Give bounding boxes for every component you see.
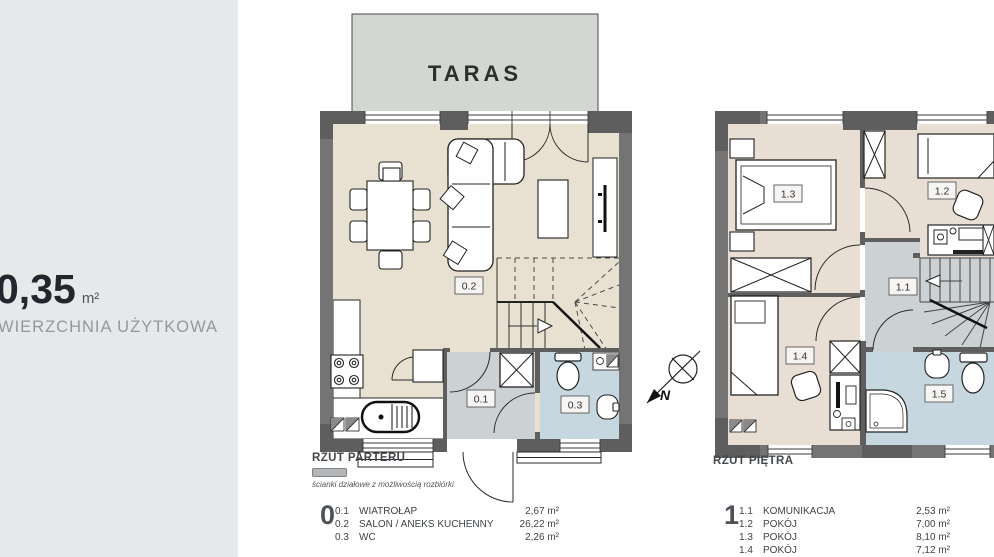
room-code: 0.3 [335,531,359,544]
room-label-12: 1.2 [935,186,950,198]
room-name: SALON / ANEKS KUCHENNY [359,518,503,531]
north-label: N [660,387,671,403]
table-row: 0.2 SALON / ANEKS KUCHENNY 26,22 m² [335,518,559,531]
ground-level-number: 0 [320,504,335,527]
legend-upper: RZUT PIĘTRA [713,455,793,467]
room-label-02: 0.2 [462,281,477,293]
wc-sink [597,395,619,419]
table-row: 1.2 POKÓJ 7,00 m² [739,518,950,531]
room-label-14: 1.4 [793,351,808,363]
floorplan-page: { "left_panel": { "area_value": "0,35", … [0,0,994,557]
terrace-label: TARAS [428,61,522,86]
room-name: WC [359,531,503,544]
bed-single-14 [731,296,778,395]
fridge [413,350,443,382]
wardrobe-14 [830,341,860,373]
room-area: 8,10 m² [894,531,950,544]
legend-ground: RZUT PARTERU ścianki działowe z możliwoś… [312,452,454,489]
room-code: 0.1 [335,505,359,518]
room-label-13: 1.3 [781,189,796,201]
room-name: POKÓJ [763,531,894,544]
room-name: POKÓJ [763,544,894,557]
room-label-01: 0.1 [474,394,489,406]
upper-level-number: 1 [724,504,739,527]
desk-14 [830,375,860,430]
table-row: 1.1 KOMUNIKACJA 2,53 m² [739,505,950,518]
wardrobe-hall [500,353,533,387]
room-11-floor [865,242,920,352]
upper-floor-plan: 1.3 1.2 1.1 1.4 1.5 [715,111,994,458]
upper-plan-title: RZUT PIĘTRA [713,455,793,467]
north-arrow: N [647,351,700,403]
upper-room-list: 1 1.1 KOMUNIKACJA 2,53 m² 1.2 POKÓJ 7,00… [724,504,950,557]
coffee-table [538,180,568,238]
floorplan-drawing: TARAS [0,0,994,557]
room-code: 1.4 [739,544,763,557]
wc-shaft [593,353,619,370]
room-name: WIATROŁAP [359,505,503,518]
room-code: 1.2 [739,518,763,531]
room-code: 1.3 [739,531,763,544]
room-area: 2,67 m² [503,505,559,518]
room-label-15: 1.5 [932,389,947,401]
toilet-wc [555,353,581,390]
room-area: 2,53 m² [894,505,950,518]
room-area: 26,22 m² [503,518,559,531]
table-row: 0.1 WIATROŁAP 2,67 m² [335,505,559,518]
room-label-03: 0.3 [568,400,583,412]
shaft-wardrobe [864,131,885,178]
room-label-11: 1.1 [896,282,911,294]
room-name: KOMUNIKACJA [763,505,894,518]
room-code: 0.2 [335,518,359,531]
tv-unit [593,158,617,257]
room-name: POKÓJ [763,518,894,531]
table-row: 1.3 POKÓJ 8,10 m² [739,531,950,544]
room-code: 1.1 [739,505,763,518]
bed-single-12 [918,134,994,178]
table-row: 1.4 POKÓJ 7,12 m² [739,544,950,557]
partition-legend-note: ścianki działowe z możliwością rozbiórki [312,480,454,489]
room-area: 7,00 m² [894,518,950,531]
shower [866,390,907,432]
table-row: 0.3 WC 2,26 m² [335,531,559,544]
partition-legend-chip [312,468,347,477]
stove [331,355,363,388]
room-area: 2,26 m² [503,531,559,544]
room-area: 7,12 m² [894,544,950,557]
ground-room-list: 0 0.1 WIATROŁAP 2,67 m² 0.2 SALON / ANEK… [320,504,559,544]
kitchen-sink [362,402,419,432]
ground-plan-title: RZUT PARTERU [312,452,454,464]
wardrobe-12-cut [983,225,994,255]
wardrobe-13 [731,258,811,292]
ground-floor-plan: TARAS [320,14,632,502]
